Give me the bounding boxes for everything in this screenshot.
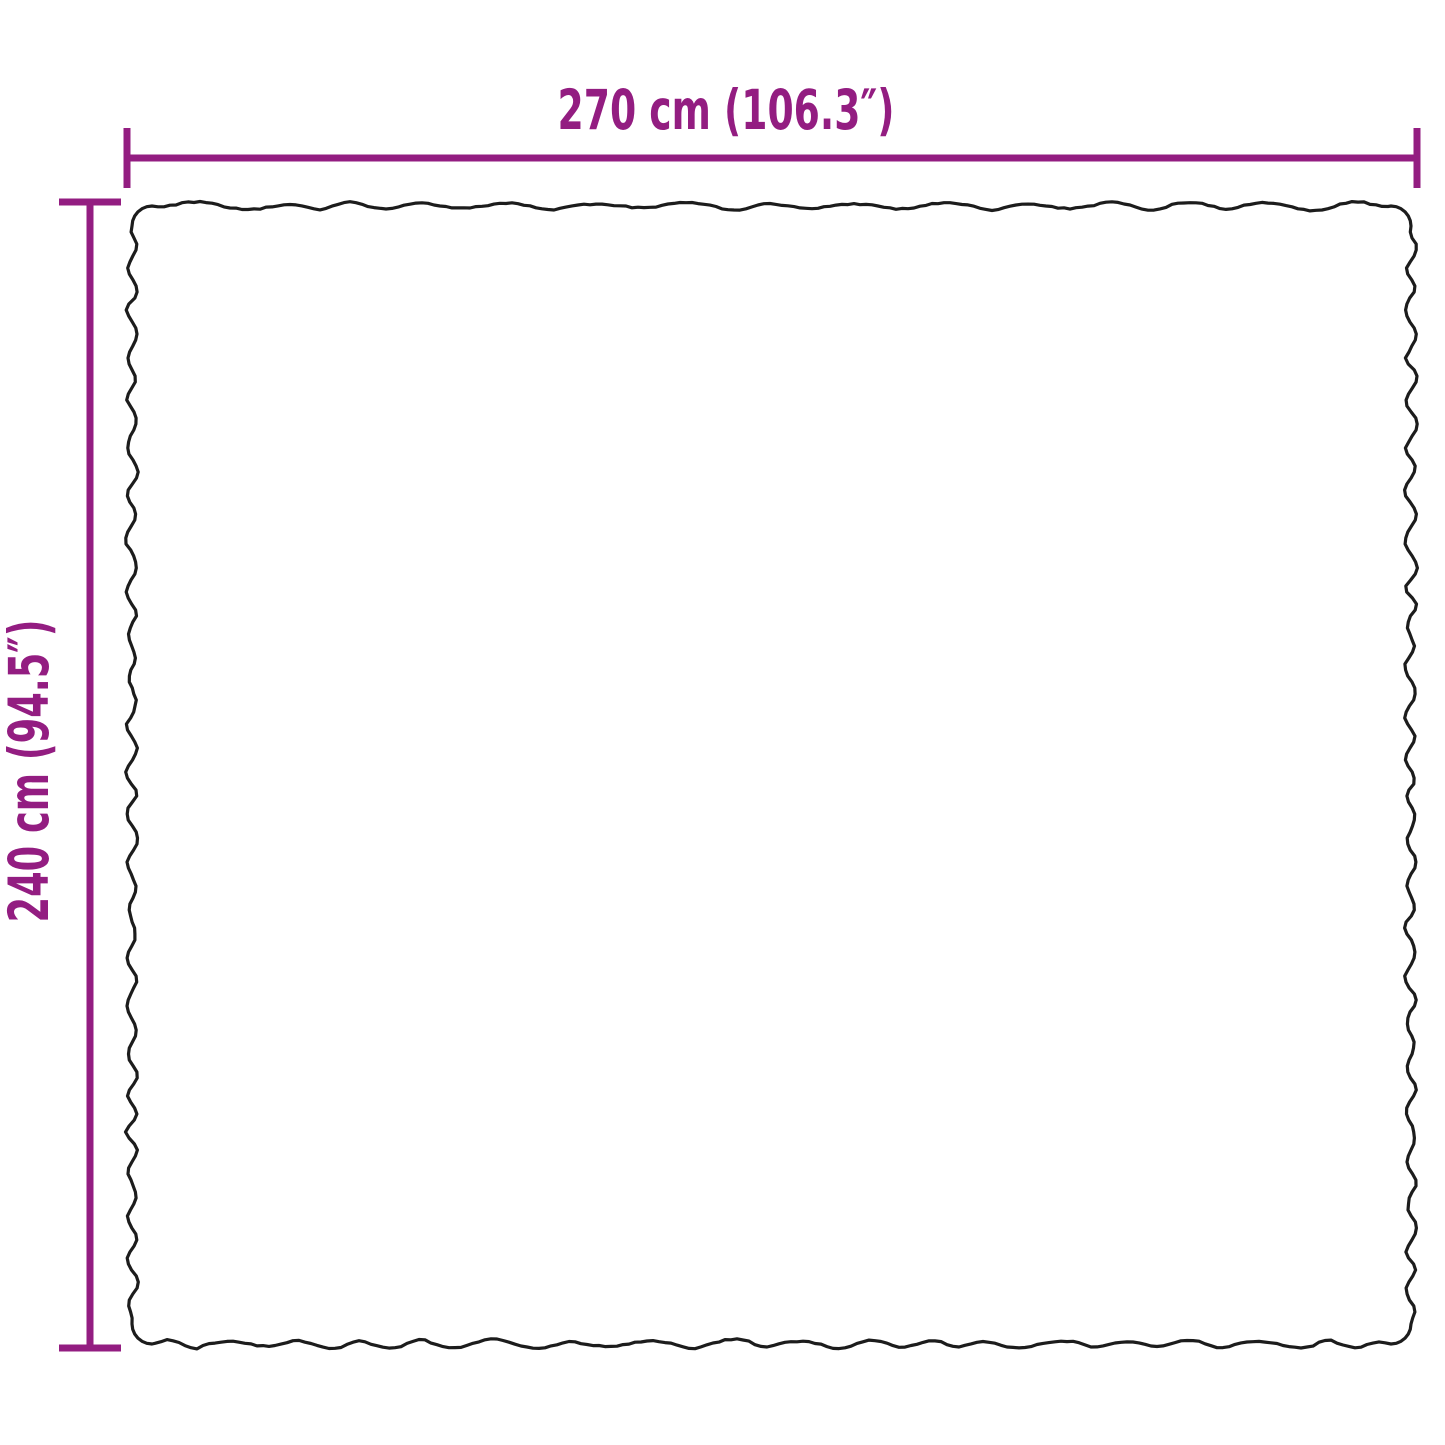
- product-dimension-diagram: 270 cm (106.3″) 240 cm (94.5″): [0, 0, 1445, 1445]
- width-label: 270 cm (106.3″): [558, 78, 895, 142]
- diagram-svg: 270 cm (106.3″) 240 cm (94.5″): [0, 0, 1445, 1445]
- height-dimension: 240 cm (94.5″): [0, 202, 121, 1348]
- product-outline: [126, 202, 1418, 1349]
- width-dimension: 270 cm (106.3″): [127, 78, 1417, 188]
- height-label: 240 cm (94.5″): [0, 620, 61, 923]
